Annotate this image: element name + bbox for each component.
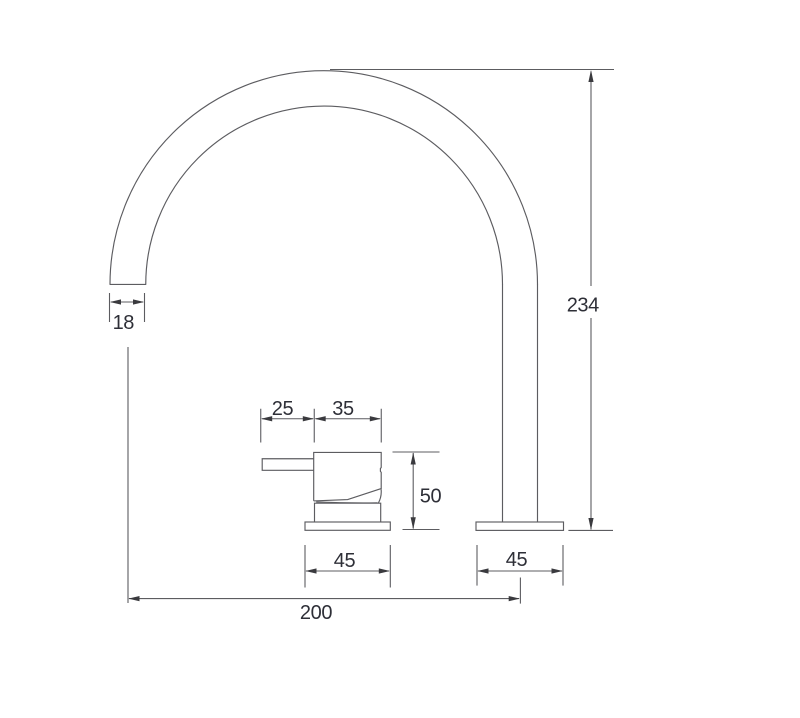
svg-text:18: 18	[113, 312, 135, 334]
svg-text:234: 234	[567, 295, 599, 317]
svg-text:50: 50	[420, 486, 442, 508]
svg-text:45: 45	[334, 550, 356, 572]
svg-text:35: 35	[332, 398, 354, 420]
svg-text:45: 45	[506, 549, 528, 571]
svg-text:200: 200	[300, 602, 332, 624]
svg-text:25: 25	[272, 398, 294, 420]
